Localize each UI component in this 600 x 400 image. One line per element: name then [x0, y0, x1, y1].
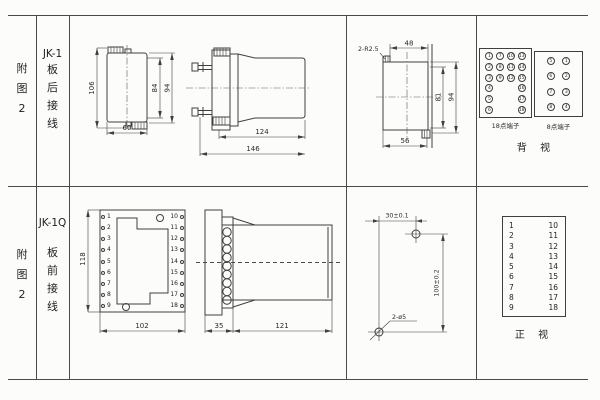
label-char: 图 [17, 268, 28, 281]
terminal-number: 11 [548, 231, 558, 240]
dimension-106: 106 [88, 48, 131, 128]
terminal-number: 2 [562, 72, 570, 80]
svg-text:84: 84 [151, 83, 159, 92]
relay-side-outline [196, 210, 342, 315]
wiring-label-top: 板后接线 [36, 63, 69, 130]
terminal-number: 6 [547, 72, 555, 80]
label-char: 板 [47, 246, 58, 259]
svg-text:48: 48 [405, 40, 414, 48]
terminal-number: 6 [485, 106, 493, 114]
terminal-number: 1 [509, 221, 514, 230]
terminal-number: 2 [101, 225, 119, 231]
terminal-number: 7 [547, 88, 555, 96]
terminal-number: 9 [496, 74, 504, 82]
terminal-number: 15 [548, 272, 558, 281]
terminal-number: 9 [509, 303, 514, 312]
terminal8-label: 8点端子 [531, 121, 586, 131]
terminal-number: 3 [562, 88, 570, 96]
label-char: 2 [19, 102, 26, 115]
fig-label-bottom: 附图2 [8, 248, 36, 301]
terminal-number: 14 [162, 259, 184, 265]
fig-label-top: 附图2 [8, 62, 36, 115]
svg-text:30±0.1: 30±0.1 [385, 213, 408, 220]
terminal-number: 6 [509, 272, 514, 281]
terminal-block-18point: 171013281114391215416517618 [479, 48, 532, 118]
terminal-number: 18 [518, 106, 526, 114]
terminal-block-8point: 51627384 [534, 51, 583, 117]
terminal-number: 5 [101, 259, 119, 265]
dimension-118: 118 [79, 210, 100, 312]
terminal-number: 12 [162, 236, 184, 242]
label-char: 板 [47, 63, 58, 76]
table-left-column: 123456789 [509, 217, 514, 316]
dimension-30: 30±0.1 [365, 213, 427, 223]
svg-text:35: 35 [215, 322, 224, 330]
plate-terminals-right: 101112131415161718 [162, 214, 184, 309]
jk1q-side-view-drawing: 35 121 [195, 205, 345, 337]
rear-view-caption: 背 视 [500, 139, 572, 154]
terminal-number: 11 [507, 63, 515, 71]
terminal-number: 13 [518, 52, 526, 60]
label-char: 接 [47, 99, 58, 112]
svg-text:2-ø5: 2-ø5 [392, 314, 406, 321]
svg-text:102: 102 [135, 322, 148, 330]
model-label-jk1: JK-1 [36, 48, 69, 60]
terminal-number: 14 [548, 262, 558, 271]
svg-text:106: 106 [88, 81, 96, 95]
svg-text:2-R2.5: 2-R2.5 [358, 46, 379, 53]
terminal-number: 9 [101, 303, 119, 309]
label-char: 前 [47, 264, 58, 277]
terminal-number: 16 [518, 84, 526, 92]
panel-cutout-drawing: 2-R2.5 48 81 94 56 [350, 36, 468, 154]
dimension-121: 121 [233, 300, 332, 333]
jk1-front-outline-drawing: 106 84 94 60 [85, 35, 185, 145]
terminal-number: 1 [485, 52, 493, 60]
terminal-number: 5 [485, 95, 493, 103]
terminal-number: 5 [547, 57, 555, 65]
terminal-number: 12 [548, 242, 558, 251]
mounting-bolt-bottom [192, 107, 212, 117]
terminal-number: 4 [101, 247, 119, 253]
svg-text:118: 118 [79, 252, 87, 265]
front-view-terminal-table: 123456789 101112131415161718 [502, 216, 566, 317]
terminal-number: 16 [162, 281, 184, 287]
cutout-outline [376, 44, 442, 148]
terminal-number: 2 [509, 231, 514, 240]
terminal-number: 10 [162, 214, 184, 220]
label-char: 附 [17, 62, 28, 75]
terminal-number: 8 [547, 103, 555, 111]
terminal-number: 10 [548, 221, 558, 230]
terminal-number: 4 [509, 252, 514, 261]
terminal-number: 7 [101, 281, 119, 287]
model-label-jk1q: JK-1Q [36, 217, 69, 229]
label-char: 后 [47, 81, 58, 94]
svg-text:94: 94 [164, 83, 172, 92]
mounting-bolt-top [192, 62, 212, 72]
terminal-number: 15 [518, 74, 526, 82]
terminal-number: 16 [548, 283, 558, 292]
svg-text:56: 56 [401, 137, 410, 145]
terminal-number: 4 [562, 103, 570, 111]
terminal-number: 3 [101, 236, 119, 242]
terminal-number: 2 [485, 63, 493, 71]
plate-terminals-left: 123456789 [101, 214, 119, 309]
terminal-number: 1 [562, 57, 570, 65]
terminal-number: 13 [162, 247, 184, 253]
svg-text:121: 121 [275, 322, 288, 330]
hole-note: 2-ø5 [370, 314, 417, 340]
divider-center [346, 15, 347, 379]
terminal-number: 18 [162, 303, 184, 309]
divider-model-column [69, 15, 70, 379]
dimension-56: 56 [383, 130, 427, 148]
wiring-label-bottom: 板前接线 [36, 246, 69, 313]
divider-right [476, 15, 477, 379]
relay-side-outline [186, 48, 311, 130]
svg-text:81: 81 [435, 93, 443, 102]
dimension-84: 84 [147, 58, 163, 118]
terminal-number: 15 [162, 270, 184, 276]
relay-case-outline [107, 45, 147, 129]
terminal-number: 5 [509, 262, 514, 271]
border-middle-line [8, 186, 588, 187]
terminal-number: 8 [496, 63, 504, 71]
terminal-number: 7 [496, 52, 504, 60]
terminal-number: 4 [485, 84, 493, 92]
terminal-number: 13 [548, 252, 558, 261]
label-char: 2 [19, 288, 26, 301]
terminal-number: 17 [548, 293, 558, 302]
terminal-number: 14 [518, 63, 526, 71]
label-char: 线 [47, 117, 58, 130]
svg-text:60: 60 [123, 124, 132, 132]
svg-text:94: 94 [448, 92, 456, 101]
jk1-side-view-drawing: 124 146 [183, 30, 315, 162]
terminal-number: 17 [518, 95, 526, 103]
terminal-number: 1 [101, 214, 119, 220]
terminal-number: 3 [485, 74, 493, 82]
label-char: 附 [17, 248, 28, 261]
radius-note: 2-R2.5 [358, 46, 385, 59]
dimension-48: 48 [390, 40, 428, 63]
terminal-number: 11 [162, 225, 184, 231]
terminal-number: 18 [548, 303, 558, 312]
terminal-number: 8 [101, 292, 119, 298]
svg-text:124: 124 [255, 128, 269, 136]
border-bottom-line [8, 379, 588, 380]
terminal-number: 7 [509, 283, 514, 292]
border-top-line [8, 15, 588, 16]
table-right-column: 101112131415161718 [548, 217, 558, 316]
terminal-number: 3 [509, 242, 514, 251]
drill-plan-drawing: 30±0.1 100±0.2 2-ø5 [355, 205, 463, 345]
terminal-number: 12 [507, 74, 515, 82]
dimension-100: 100±0.2 [434, 234, 444, 332]
terminal-number: 6 [101, 270, 119, 276]
terminal-number: 10 [507, 52, 515, 60]
dimension-35: 35 [205, 308, 233, 333]
label-char: 接 [47, 282, 58, 295]
terminal-number: 8 [509, 293, 514, 302]
front-view-caption: 正 视 [500, 326, 568, 341]
svg-text:100±0.2: 100±0.2 [434, 269, 441, 296]
terminal-number: 17 [162, 292, 184, 298]
label-char: 线 [47, 300, 58, 313]
label-char: 图 [17, 82, 28, 95]
svg-text:146: 146 [246, 145, 260, 153]
terminal18-label: 18点端子 [476, 120, 535, 130]
relay-dimension-drawing-sheet: 附图2 JK-1 板后接线 106 [0, 0, 600, 400]
dimension-102: 102 [100, 312, 185, 333]
dimension-124: 124 [219, 120, 305, 139]
